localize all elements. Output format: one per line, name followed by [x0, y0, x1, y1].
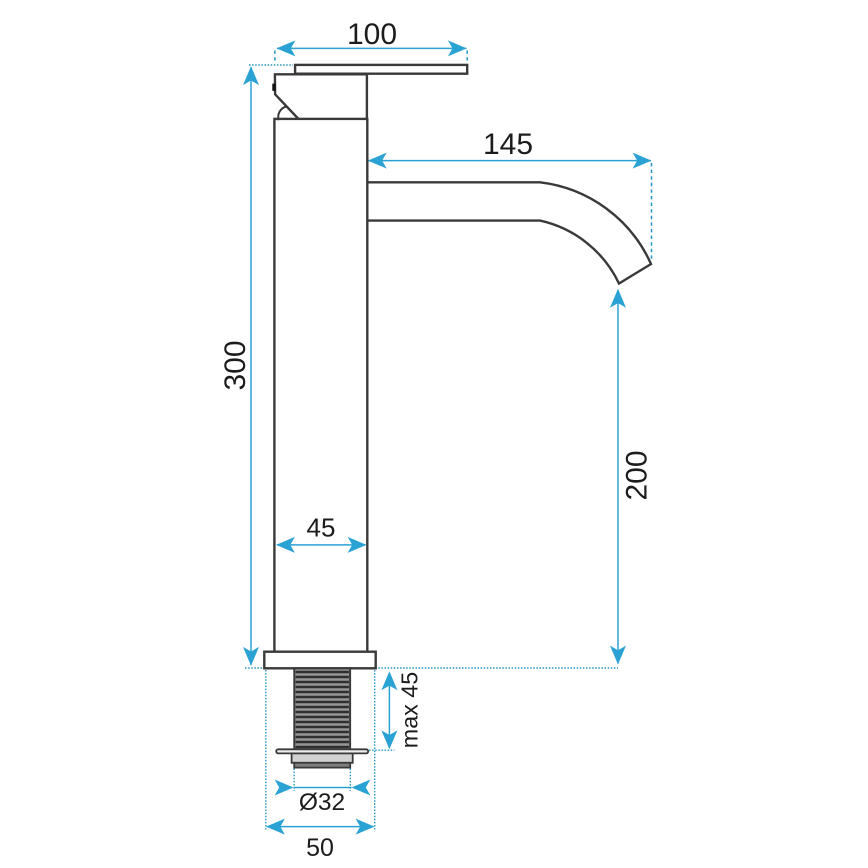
svg-text:145: 145 — [483, 128, 533, 161]
svg-text:45: 45 — [307, 513, 336, 543]
svg-text:200: 200 — [621, 450, 654, 500]
svg-text:50: 50 — [306, 834, 334, 862]
svg-text:Ø32: Ø32 — [299, 789, 345, 816]
svg-text:max 45: max 45 — [397, 672, 423, 748]
svg-text:300: 300 — [219, 340, 252, 390]
svg-text:100: 100 — [347, 18, 397, 51]
